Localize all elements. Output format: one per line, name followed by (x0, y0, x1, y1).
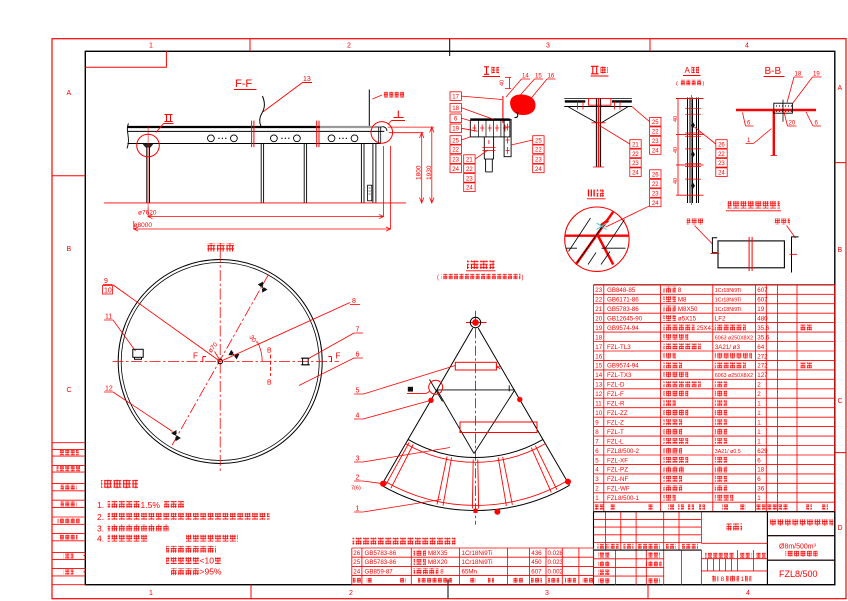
svg-text:A: A (838, 85, 843, 92)
svg-text:FZL-Z: FZL-Z (607, 420, 624, 427)
svg-text:35.6: 35.6 (757, 334, 770, 341)
svg-text:FZL-F: FZL-F (607, 391, 624, 398)
svg-text:B: B (838, 247, 843, 254)
svg-text:64: 64 (757, 344, 764, 351)
svg-text:13: 13 (595, 382, 602, 389)
svg-text:40: 40 (500, 80, 506, 86)
svg-text:GB9574-94: GB9574-94 (607, 363, 639, 370)
svg-text:25: 25 (452, 138, 459, 144)
svg-text:15: 15 (595, 363, 602, 370)
svg-text:7: 7 (595, 438, 599, 445)
svg-text:): ) (703, 81, 705, 87)
svg-text:FZL-TL3: FZL-TL3 (607, 344, 631, 351)
svg-text:7(6): 7(6) (351, 486, 361, 492)
svg-text:1: 1 (757, 495, 761, 502)
svg-text:4: 4 (745, 43, 749, 50)
svg-text:19: 19 (757, 306, 764, 313)
svg-text:(: ( (437, 275, 439, 281)
svg-text:21: 21 (595, 306, 602, 313)
svg-text:25X41: 25X41 (697, 325, 715, 332)
svg-text:4: 4 (595, 467, 599, 474)
svg-text:1: 1 (757, 429, 761, 436)
svg-text:18: 18 (452, 106, 459, 112)
svg-text:127: 127 (757, 372, 768, 379)
svg-text:22: 22 (632, 152, 639, 158)
svg-text:436: 436 (531, 550, 542, 557)
svg-text:607: 607 (531, 568, 542, 575)
svg-text:ø7620: ø7620 (138, 210, 157, 217)
svg-text:23: 23 (466, 176, 473, 182)
svg-text:FZL8/500: FZL8/500 (779, 569, 818, 579)
svg-text:FZL8/500-2: FZL8/500-2 (607, 448, 640, 455)
svg-text:ø8000: ø8000 (134, 222, 153, 229)
svg-text:8: 8 (678, 287, 682, 294)
svg-text:FZL-PZ: FZL-PZ (607, 467, 628, 474)
svg-text:22: 22 (466, 167, 473, 173)
svg-text:2: 2 (757, 382, 761, 389)
svg-text:24: 24 (535, 167, 542, 173)
svg-text:0.028: 0.028 (548, 550, 564, 557)
svg-text:10: 10 (104, 288, 112, 295)
svg-text:B: B (267, 348, 272, 355)
svg-text:25: 25 (535, 138, 542, 144)
svg-text:FZL-TX3: FZL-TX3 (607, 372, 632, 379)
svg-text:6: 6 (356, 352, 360, 359)
svg-text:2: 2 (356, 475, 360, 482)
svg-text:23: 23 (535, 158, 542, 164)
svg-text:LF2: LF2 (715, 316, 726, 323)
svg-text:40: 40 (673, 147, 679, 153)
svg-text:16: 16 (595, 353, 602, 360)
svg-text:26: 26 (353, 550, 360, 557)
svg-text:1Cr18Ni9Ti: 1Cr18Ni9Ti (715, 288, 742, 294)
svg-text:8: 8 (721, 576, 725, 583)
svg-text:<10: <10 (200, 556, 215, 566)
svg-text:1: 1 (149, 43, 153, 50)
svg-text:7: 7 (356, 327, 360, 334)
svg-text:11: 11 (105, 314, 112, 321)
svg-text:4.: 4. (97, 534, 104, 544)
svg-text:2: 2 (757, 391, 761, 398)
svg-text:8: 8 (595, 429, 599, 436)
svg-text:24: 24 (632, 171, 639, 177)
svg-text:1: 1 (757, 420, 761, 427)
svg-text:F: F (193, 352, 198, 361)
svg-text:24: 24 (652, 148, 659, 154)
svg-text:FZL-T: FZL-T (607, 429, 624, 436)
svg-text:35.6: 35.6 (757, 325, 770, 332)
svg-text:GB6171-86: GB6171-86 (607, 297, 639, 304)
svg-text:GB5783-86: GB5783-86 (607, 306, 639, 313)
svg-text:25: 25 (652, 120, 659, 126)
svg-text:24: 24 (452, 167, 459, 173)
svg-text:6: 6 (595, 448, 599, 455)
svg-text:1: 1 (356, 506, 360, 513)
svg-text:1.: 1. (97, 500, 104, 510)
svg-text:C: C (838, 398, 843, 405)
svg-text:C: C (67, 387, 72, 394)
svg-text:24: 24 (718, 171, 725, 177)
svg-text:2: 2 (595, 486, 599, 493)
svg-text:607: 607 (757, 297, 768, 304)
svg-text:480: 480 (757, 316, 768, 323)
svg-text:2: 2 (347, 43, 351, 50)
svg-text:23: 23 (452, 158, 459, 164)
svg-text:22: 22 (652, 130, 659, 136)
svg-text:450: 450 (531, 559, 542, 566)
svg-text:22: 22 (595, 297, 602, 304)
svg-text:M8X50: M8X50 (678, 306, 698, 313)
svg-text:24: 24 (652, 201, 659, 207)
svg-text:24: 24 (466, 186, 473, 192)
svg-text:3A21/ ø0.5: 3A21/ ø0.5 (715, 449, 741, 455)
svg-text:9: 9 (104, 278, 108, 285)
svg-text:FZL-XF: FZL-XF (607, 457, 628, 464)
svg-text:B: B (67, 246, 72, 253)
svg-text:1Cr18Ni9Ti: 1Cr18Ni9Ti (715, 298, 742, 304)
svg-text:10: 10 (595, 410, 602, 417)
svg-text:23: 23 (595, 287, 602, 294)
svg-text:22: 22 (535, 148, 542, 154)
svg-text:FZL8/500-1: FZL8/500-1 (607, 495, 640, 502)
svg-text:629: 629 (757, 448, 768, 455)
svg-text:1930: 1930 (426, 165, 433, 180)
svg-text:FZL-ZZ: FZL-ZZ (607, 410, 628, 417)
svg-text:M8X20: M8X20 (428, 559, 448, 566)
svg-text:607: 607 (757, 287, 768, 294)
svg-text:GB12645-90: GB12645-90 (607, 316, 643, 323)
svg-text:20: 20 (595, 316, 602, 323)
svg-text:0.002: 0.002 (548, 568, 564, 575)
svg-text:2: 2 (349, 590, 353, 597)
svg-text:1: 1 (757, 401, 761, 408)
svg-text:1Cr18Ni9Ti: 1Cr18Ni9Ti (462, 550, 493, 557)
svg-text:6: 6 (757, 476, 761, 483)
svg-text:2.: 2. (97, 512, 104, 522)
svg-text:6063 ø250X8X2: 6063 ø250X8X2 (715, 373, 753, 379)
svg-text:36: 36 (757, 486, 764, 493)
svg-text:23: 23 (652, 191, 659, 197)
svg-text:19: 19 (452, 127, 459, 133)
svg-text:3: 3 (595, 476, 599, 483)
svg-text:(: ( (676, 81, 678, 87)
svg-text:9: 9 (595, 420, 599, 427)
svg-text:21: 21 (466, 158, 473, 164)
svg-text:3.: 3. (97, 523, 104, 533)
svg-text:1: 1 (757, 438, 761, 445)
svg-text:4: 4 (356, 413, 360, 420)
svg-text:3: 3 (356, 456, 360, 463)
svg-text:3A21/ ø3: 3A21/ ø3 (715, 344, 741, 351)
svg-text:1800: 1800 (416, 165, 423, 180)
svg-text:5: 5 (595, 457, 599, 464)
svg-text:FZL-L: FZL-L (607, 438, 624, 445)
svg-text:1: 1 (741, 576, 745, 583)
svg-text:5: 5 (356, 388, 360, 395)
svg-text:23: 23 (652, 139, 659, 145)
svg-text:272: 272 (757, 363, 768, 370)
svg-text:17: 17 (452, 95, 459, 101)
svg-text:M8X35: M8X35 (428, 550, 448, 557)
svg-text:272: 272 (757, 353, 768, 360)
svg-text:F-F: F-F (235, 78, 252, 90)
svg-text:8: 8 (352, 298, 356, 305)
svg-text:21: 21 (632, 142, 639, 148)
svg-text:FZL-NF: FZL-NF (607, 476, 629, 483)
svg-text:F: F (336, 352, 341, 361)
svg-text:1: 1 (757, 410, 761, 417)
svg-text:1: 1 (149, 590, 153, 597)
svg-text:23: 23 (718, 161, 725, 167)
svg-text:1Cr18Ni9Ti: 1Cr18Ni9Ti (462, 559, 493, 566)
svg-text:1.5%: 1.5% (141, 500, 161, 510)
svg-text:1: 1 (595, 495, 599, 502)
svg-text:14: 14 (595, 372, 602, 379)
svg-text:19: 19 (595, 325, 602, 332)
svg-text:Ø8m/500m³: Ø8m/500m³ (779, 544, 817, 551)
svg-text:B: B (267, 380, 272, 387)
svg-text:40: 40 (673, 116, 679, 122)
svg-text:3: 3 (546, 43, 550, 50)
svg-text:8: 8 (440, 568, 444, 575)
svg-text:22: 22 (452, 148, 459, 154)
svg-text:4: 4 (746, 590, 750, 597)
svg-text:40: 40 (673, 178, 679, 184)
svg-text:A: A (685, 66, 691, 75)
svg-text:13: 13 (303, 76, 311, 83)
svg-text:B-B: B-B (765, 66, 782, 77)
svg-text:12: 12 (595, 391, 602, 398)
svg-text:22: 22 (718, 152, 725, 158)
svg-text:24: 24 (353, 568, 360, 575)
svg-text:26: 26 (652, 173, 659, 179)
svg-text:11: 11 (595, 401, 602, 408)
svg-text:GB9574-94: GB9574-94 (607, 325, 639, 332)
svg-text:M8: M8 (678, 297, 687, 304)
svg-text:65Mn: 65Mn (462, 568, 478, 575)
svg-text:0.023: 0.023 (548, 559, 564, 566)
svg-text:GB859-87: GB859-87 (365, 568, 394, 575)
svg-text:FZL-WF: FZL-WF (607, 486, 630, 493)
svg-text:FZL-R: FZL-R (607, 401, 625, 408)
svg-text:23: 23 (632, 161, 639, 167)
svg-text:1Cr18Ni9Ti: 1Cr18Ni9Ti (715, 307, 742, 313)
svg-text:18: 18 (595, 334, 602, 341)
svg-text:12: 12 (105, 386, 113, 393)
svg-text:A: A (67, 90, 72, 97)
svg-text:3: 3 (545, 590, 549, 597)
svg-text:FZL-D: FZL-D (607, 382, 625, 389)
svg-text:25: 25 (353, 559, 360, 566)
svg-text:D: D (838, 525, 843, 532)
svg-text:26: 26 (718, 142, 725, 148)
svg-text:17: 17 (595, 344, 602, 351)
svg-text:>95%: >95% (200, 567, 222, 577)
svg-text:22: 22 (652, 182, 659, 188)
svg-text:6063 ø250X8X2: 6063 ø250X8X2 (715, 335, 753, 341)
svg-text:GB5783-86: GB5783-86 (365, 550, 397, 557)
svg-text:ø5X15: ø5X15 (678, 316, 697, 323)
svg-text:6: 6 (757, 457, 761, 464)
svg-text:GB848-85: GB848-85 (607, 287, 636, 294)
svg-text:GB5783-86: GB5783-86 (365, 559, 397, 566)
svg-text:18: 18 (757, 467, 764, 474)
svg-text:): ) (522, 275, 524, 281)
